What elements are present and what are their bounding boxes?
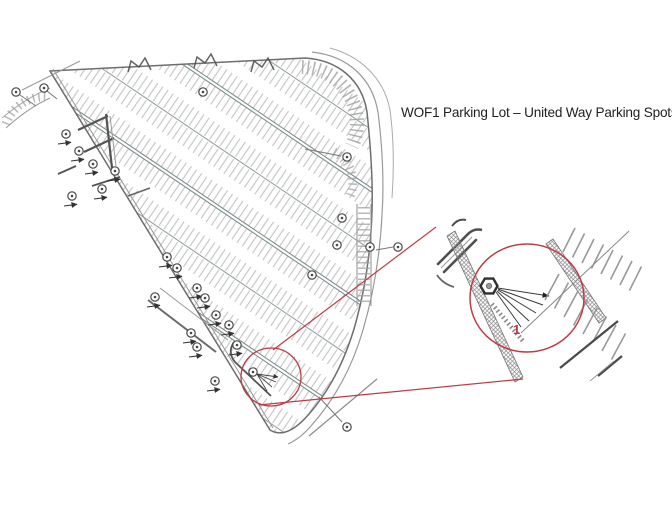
map-title: WOF1 Parking Lot – United Way Parking Sp… (401, 105, 672, 120)
inset-pole-fan-arrow (496, 288, 549, 327)
inset-detail (437, 220, 642, 382)
inset-pole-marker (481, 279, 498, 294)
page: { "title": { "text": "WOF1 Parking Lot –… (0, 0, 672, 510)
inset-aisle-line (521, 231, 629, 333)
inset-hatched-median-left (447, 231, 523, 382)
parking-lot-site-plan: 1 (0, 0, 672, 510)
spot-number-label: 1 (513, 322, 520, 337)
highlight-circle-inset (470, 244, 584, 352)
